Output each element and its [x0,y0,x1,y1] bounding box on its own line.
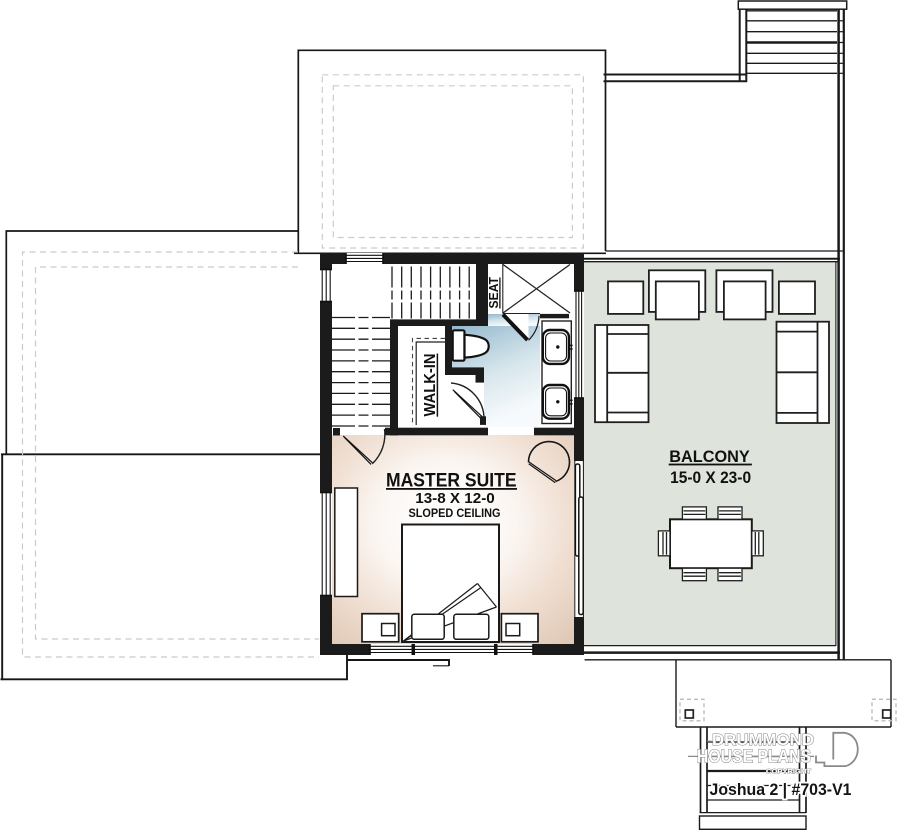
svg-text:COPYRIGHT: COPYRIGHT [766,768,811,775]
svg-text:WALK-IN: WALK-IN [422,354,439,417]
svg-text:15-0 X 23-0: 15-0 X 23-0 [670,469,751,487]
svg-text:13-8 X 12-0: 13-8 X 12-0 [415,491,495,507]
svg-text:BALCONY: BALCONY [669,447,750,466]
svg-text:HOUSE PLANS: HOUSE PLANS [697,747,811,767]
svg-text:Joshua 2 | #703-V1: Joshua 2 | #703-V1 [710,781,852,799]
svg-text:SEAT: SEAT [486,277,501,309]
svg-text:SLOPED CEILING: SLOPED CEILING [409,506,501,520]
